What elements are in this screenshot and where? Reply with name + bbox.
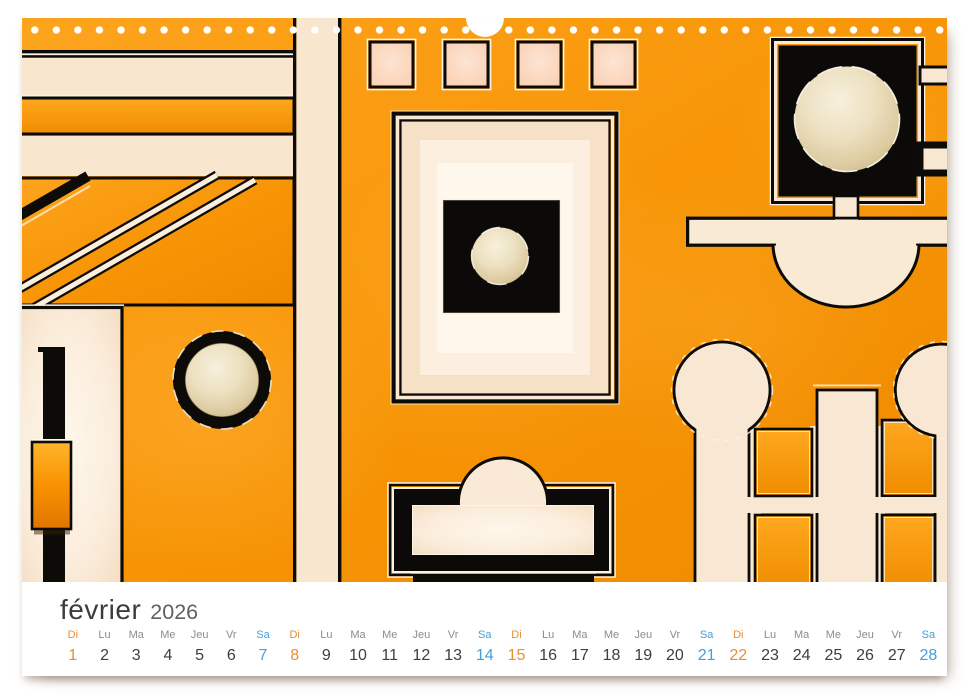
day-column: Ma24 — [786, 628, 818, 665]
day-number: 10 — [342, 647, 374, 665]
day-column: Me18 — [596, 628, 628, 665]
weekday-label: Sa — [247, 628, 279, 642]
knob-dial — [173, 331, 271, 429]
day-number: 27 — [881, 647, 913, 665]
day-number: 13 — [437, 647, 469, 665]
center-black-square — [443, 200, 560, 313]
day-number: 6 — [215, 647, 247, 665]
weekday-label: Lu — [754, 628, 786, 642]
weekday-label: Ma — [564, 628, 596, 642]
day-number: 15 — [501, 647, 533, 665]
weekday-label: Vr — [881, 628, 913, 642]
day-number: 5 — [184, 647, 216, 665]
day-column: Sa28 — [913, 628, 945, 665]
weekday-label: Di — [57, 628, 89, 642]
calendar-title: février2026 — [60, 594, 198, 626]
day-number: 18 — [596, 647, 628, 665]
weekday-label: Me — [374, 628, 406, 642]
box-stem — [834, 196, 858, 218]
calendar-product-page: février2026 Di1Lu2Ma3Me4Jeu5Vr6Sa7Di8Lu9… — [0, 0, 971, 700]
calendar-sheet: février2026 Di1Lu2Ma3Me4Jeu5Vr6Sa7Di8Lu9… — [22, 18, 947, 676]
weekday-label: Lu — [311, 628, 343, 642]
slider-panel — [22, 304, 124, 582]
day-number: 22 — [722, 647, 754, 665]
weekday-label: Vr — [215, 628, 247, 642]
weekday-label: Di — [722, 628, 754, 642]
day-number: 19 — [627, 647, 659, 665]
day-number: 3 — [120, 647, 152, 665]
day-column: Di22 — [722, 628, 754, 665]
day-number: 17 — [564, 647, 596, 665]
day-column: Jeu26 — [849, 628, 881, 665]
weekday-label: Lu — [89, 628, 121, 642]
weekday-label: Me — [818, 628, 850, 642]
day-column: Di15 — [501, 628, 533, 665]
weekday-label: Lu — [532, 628, 564, 642]
day-column: Vr27 — [881, 628, 913, 665]
left-band-section — [22, 50, 294, 310]
day-number: 2 — [89, 647, 121, 665]
day-number: 24 — [786, 647, 818, 665]
divider-column — [293, 18, 341, 582]
day-column: Ma10 — [342, 628, 374, 665]
weekday-label: Jeu — [406, 628, 438, 642]
day-number: 20 — [659, 647, 691, 665]
day-number: 21 — [691, 647, 723, 665]
weekday-label: Vr — [437, 628, 469, 642]
weekday-label: Sa — [469, 628, 501, 642]
weekday-label: Sa — [913, 628, 945, 642]
day-number: 8 — [279, 647, 311, 665]
day-column: Di8 — [279, 628, 311, 665]
weekday-label: Ma — [120, 628, 152, 642]
day-column: Ma17 — [564, 628, 596, 665]
day-number: 7 — [247, 647, 279, 665]
weekday-label: Vr — [659, 628, 691, 642]
calendar-strip: février2026 Di1Lu2Ma3Me4Jeu5Vr6Sa7Di8Lu9… — [22, 582, 947, 676]
day-column: Lu9 — [311, 628, 343, 665]
day-column: Vr6 — [215, 628, 247, 665]
calendar-grid: Di1Lu2Ma3Me4Jeu5Vr6Sa7Di8Lu9Ma10Me11Jeu1… — [57, 628, 944, 665]
weekday-label: Jeu — [849, 628, 881, 642]
day-column: Lu16 — [532, 628, 564, 665]
weekday-label: Me — [152, 628, 184, 642]
day-number: 26 — [849, 647, 881, 665]
day-number: 16 — [532, 647, 564, 665]
day-column: Sa7 — [247, 628, 279, 665]
day-column: Jeu12 — [406, 628, 438, 665]
day-number: 25 — [818, 647, 850, 665]
weekday-label: Jeu — [184, 628, 216, 642]
bottom-black-bar — [413, 574, 594, 582]
day-number: 9 — [311, 647, 343, 665]
weekday-label: Me — [596, 628, 628, 642]
day-number: 28 — [913, 647, 945, 665]
weekday-label: Sa — [691, 628, 723, 642]
weekday-label: Ma — [342, 628, 374, 642]
weekday-label: Ma — [786, 628, 818, 642]
day-column: Sa21 — [691, 628, 723, 665]
day-column: Ma3 — [120, 628, 152, 665]
connector-bar-top — [920, 67, 947, 84]
center-panel — [392, 112, 619, 404]
year-label: 2026 — [150, 600, 198, 624]
day-number: 12 — [406, 647, 438, 665]
day-number: 23 — [754, 647, 786, 665]
middle-pipe — [817, 390, 877, 582]
connector-bar-bottom — [920, 145, 947, 173]
artwork-abstract-orange-circuit — [22, 18, 947, 582]
day-column: Jeu19 — [627, 628, 659, 665]
day-number: 4 — [152, 647, 184, 665]
day-column: Me4 — [152, 628, 184, 665]
horizontal-pipe — [746, 497, 947, 513]
day-column: Me25 — [818, 628, 850, 665]
day-number: 1 — [57, 647, 89, 665]
day-column: Sa14 — [469, 628, 501, 665]
day-column: Vr20 — [659, 628, 691, 665]
day-number: 14 — [469, 647, 501, 665]
weekday-label: Di — [501, 628, 533, 642]
slider-handle — [32, 442, 71, 529]
day-column: Lu2 — [89, 628, 121, 665]
day-column: Me11 — [374, 628, 406, 665]
day-column: Di1 — [57, 628, 89, 665]
weekday-label: Di — [279, 628, 311, 642]
month-label: février — [60, 594, 141, 625]
day-column: Vr13 — [437, 628, 469, 665]
weekday-label: Jeu — [627, 628, 659, 642]
day-number: 11 — [374, 647, 406, 665]
day-column: Jeu5 — [184, 628, 216, 665]
ball-box — [771, 38, 947, 205]
day-column: Lu23 — [754, 628, 786, 665]
